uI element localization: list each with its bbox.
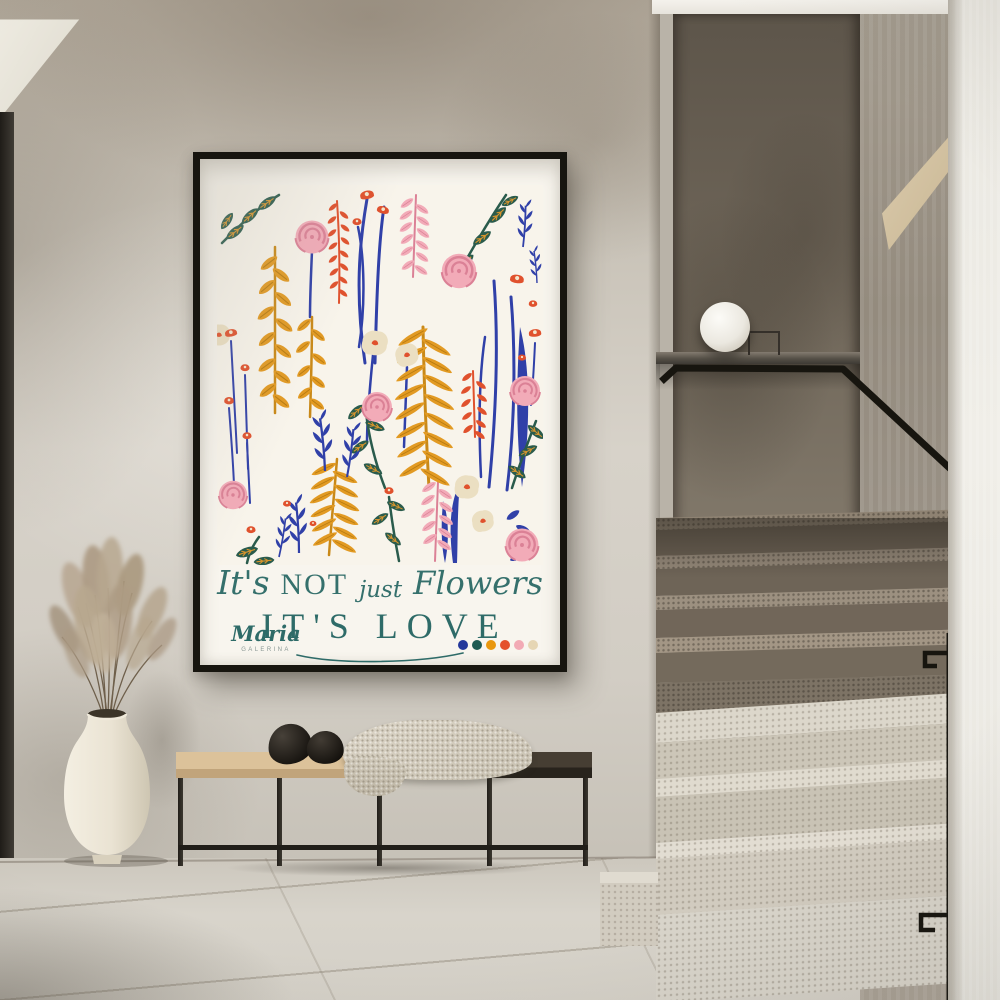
signature-subtitle: GALERINA [226,647,306,653]
palette-dot [528,640,538,650]
ceramic-vase [64,709,150,864]
title-word-just: just [359,577,402,603]
title-word-not: NOT [280,568,348,601]
bench-leg [277,778,282,866]
poster-frame: It's NOT just Flowers IT'S LOVE Maria GA… [193,152,567,672]
palette-dot [472,640,482,650]
step-tread [600,872,658,883]
stairwell [656,13,950,1000]
protruding-bottom-step [600,872,658,946]
bench-leg [583,778,588,866]
vase-with-pampas [40,533,192,867]
bench-leg [178,778,183,866]
throw-blanket-drape [344,756,406,796]
poster-palette-dots [458,640,538,650]
step-riser [600,883,658,946]
artist-signature: Maria GALERINA [226,621,306,653]
floral-artwork [217,185,543,565]
signature-name: Maria [226,621,306,646]
hallway-scene: It's NOT just Flowers IT'S LOVE Maria GA… [0,0,1000,1000]
palette-dot [500,640,510,650]
poster-title-line1: It's NOT just Flowers [200,563,560,602]
palette-dot [486,640,496,650]
floral-artwork-svg [217,185,543,565]
bench-leg [487,778,492,866]
bench-shadow [164,856,608,880]
bench [176,718,594,872]
palette-dot [514,640,524,650]
title-word-flowers: Flowers [413,564,543,602]
handrail [656,13,950,1000]
bench-bottom-rail [178,845,588,850]
pampas-grass [44,536,182,715]
poster-mat: It's NOT just Flowers IT'S LOVE Maria GA… [200,159,560,665]
title-word-its: It's [217,563,269,602]
flourish-swash [295,651,465,665]
palette-dot [458,640,468,650]
right-wall [948,0,1000,1000]
door-frame-strip [0,112,14,906]
